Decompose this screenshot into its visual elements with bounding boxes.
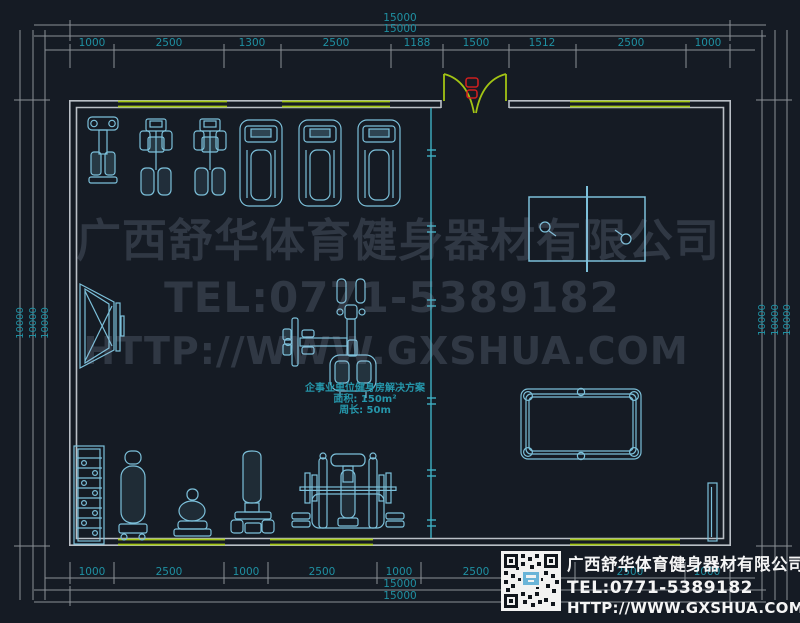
dim-bottom-seg: 2500 [309, 566, 336, 578]
logo-tel: TEL:0771-5389182 [567, 578, 753, 598]
dim-right: 10000 [770, 304, 781, 336]
dim-top-seg: 1000 [695, 37, 722, 49]
dim-bottom-total-2: 15000 [383, 590, 416, 602]
exercise-bike [140, 119, 172, 195]
dim-top-seg: 1300 [239, 37, 266, 49]
logo-url: HTTP://WWW.GXSHUA.COM [567, 599, 800, 617]
pool-table [521, 388, 641, 459]
plan-info-title: 企事业单位健身房解决方案 [304, 381, 426, 394]
qr-center-logo [521, 570, 541, 587]
roller-bench [119, 451, 147, 540]
plan-info-perimeter: 周长: 50m [339, 403, 391, 416]
stepper-machine [88, 117, 118, 183]
stool-seat [174, 489, 211, 536]
dim-right: 10000 [782, 304, 793, 336]
dim-bottom-seg: 2500 [156, 566, 183, 578]
watermark-tel: TEL:0771-5389182 [164, 273, 620, 322]
dim-top-seg: 2500 [323, 37, 350, 49]
bench-press [292, 453, 404, 528]
watermark-company: 广西舒华体育健身器材有限公司 [76, 214, 720, 267]
dim-left: 10000 [28, 307, 39, 339]
exercise-bike [194, 119, 226, 195]
dim-top-total-2: 15000 [383, 23, 416, 35]
dim-top-seg: 1500 [463, 37, 490, 49]
dim-top-seg: 1000 [79, 37, 106, 49]
dim-top-seg: 1188 [404, 37, 431, 49]
dim-right: 10000 [757, 304, 768, 336]
treadmill [358, 120, 400, 206]
door-handle-icon [466, 78, 478, 98]
treadmill [299, 120, 341, 206]
logo-block: 广西舒华体育健身器材有限公司 TEL:0771-5389182 HTTP://W… [501, 551, 800, 617]
dim-bottom-seg: 2500 [463, 566, 490, 578]
dim-top-seg: 2500 [618, 37, 645, 49]
dim-top-seg: 2500 [156, 37, 183, 49]
entrance-double-door [444, 74, 506, 113]
plan-info-area: 面积: 150m² [333, 392, 396, 405]
qr-code-icon [501, 551, 561, 611]
logo-company: 广西舒华体育健身器材有限公司 [567, 554, 800, 574]
cad-floorplan-screenshot: 15000 15000 1000 2500 1300 2500 1188 150… [0, 0, 800, 623]
floorplan-canvas: 15000 15000 1000 2500 1300 2500 1188 150… [0, 0, 800, 623]
dim-bottom-seg: 1000 [386, 566, 413, 578]
dim-bottom-seg: 1000 [79, 566, 106, 578]
dim-left: 10000 [15, 307, 26, 339]
plan-info: 企事业单位健身房解决方案 面积: 150m² 周长: 50m [304, 381, 426, 416]
watermark-url: HTTP://WWW.GXSHUA.COM [83, 329, 688, 373]
treadmill [240, 120, 282, 206]
upright-bench [231, 451, 274, 533]
wall-column [708, 483, 717, 541]
dim-bottom-total-1: 15000 [383, 578, 416, 590]
glass-partition [427, 108, 436, 538]
dim-bottom-seg: 1000 [233, 566, 260, 578]
dim-left: 10000 [40, 307, 51, 339]
watermark: 广西舒华体育健身器材有限公司 TEL:0771-5389182 HTTP://W… [76, 214, 720, 373]
door-leaves [444, 74, 506, 113]
dumbbell-rack [74, 446, 104, 544]
dim-top-seg: 1512 [529, 37, 556, 49]
